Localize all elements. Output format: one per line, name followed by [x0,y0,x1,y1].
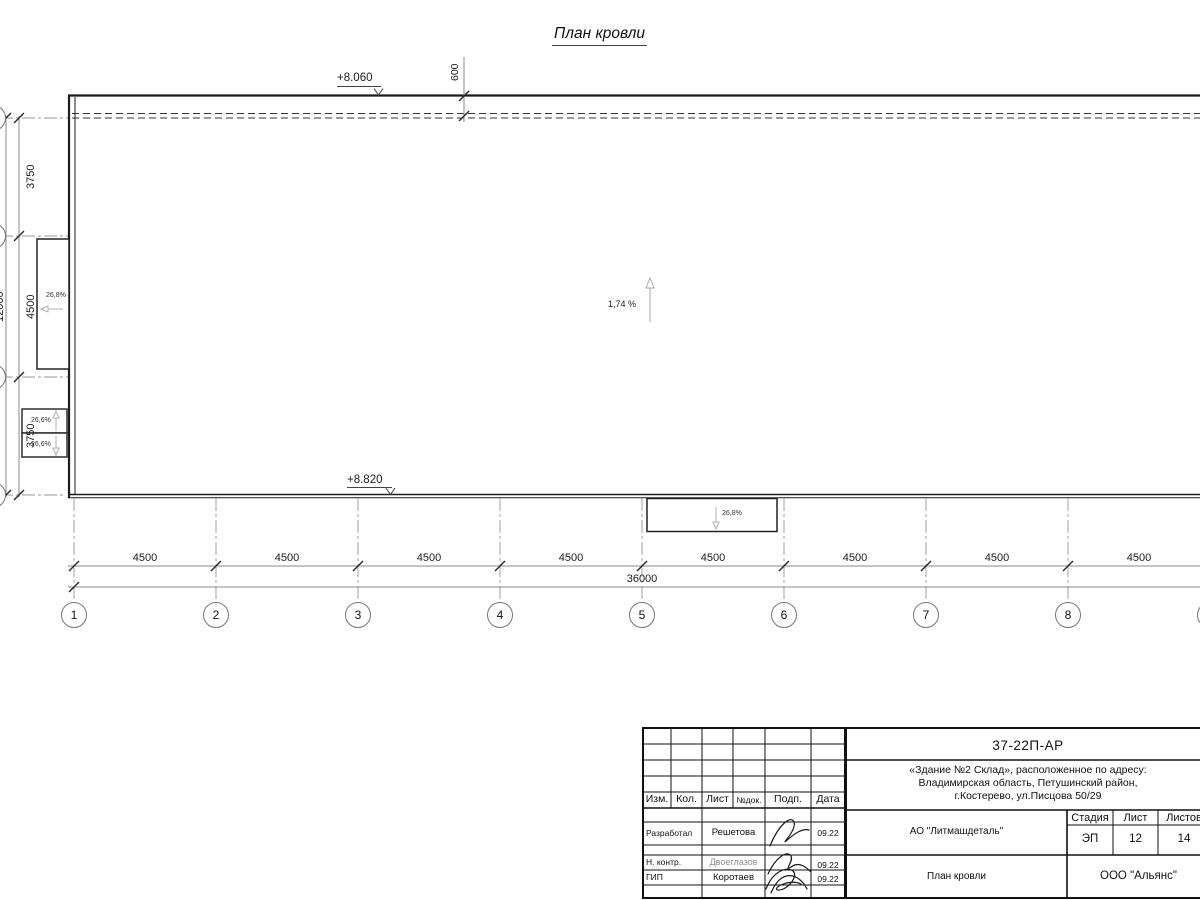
tb-date-developer: 09.22 [811,828,845,838]
grid-bubble-6: 6 [772,608,796,622]
tb-col-data: Дата [811,793,845,805]
tb-client: АО "Литмашдеталь" [846,826,1067,837]
tb-role-ncontrol: Н. контр. [646,857,702,867]
tb-project-address: «Здание №2 Склад», расположенное по адре… [846,764,1200,803]
main-roof-slope: 1,74 % [608,299,636,309]
grid-bubble-3: 3 [346,608,370,622]
grid-bubble-7: 7 [914,608,938,622]
left-dim-2: 4500 [25,236,39,377]
span-dim-8: 4500 [1099,552,1179,564]
left-dim-1: 3750 [25,118,39,236]
tb-name-developer: Решетова [702,827,765,838]
left-canopy [37,239,69,369]
span-dim-4: 4500 [531,552,611,564]
grid-bubble-2: 2 [204,608,228,622]
tb-name-ncontrol: Двоеглазов [702,857,765,867]
bottom-canopy [647,499,777,532]
tb-sheet-label: Лист [1113,812,1158,824]
slope-arrow [646,278,654,322]
tb-sheet-value: 12 [1113,833,1158,845]
signature-dvoeglazov [768,854,811,874]
small-canopy-slope-bottom: 26,6% [31,441,51,448]
span-dim-6: 4500 [815,552,895,564]
grid-bubbles [0,106,1200,628]
tb-col-list: Лист [702,793,733,805]
roof-overhang-dashed-lines [72,114,1200,119]
tb-col-ndok: №док. [733,795,765,805]
grid-bubble-5: 5 [630,608,654,622]
tb-address-line-2: Владимирская область, Петушинский район, [846,777,1200,790]
dimension-lines [6,57,1200,587]
tb-col-podp: Подп. [765,793,811,805]
tb-sheet-title: План кровли [846,871,1067,882]
elevation-bottom-label: +8.820 [347,474,383,486]
tb-role-developer: Разработал [646,828,702,838]
bottom-canopy-slope: 26,8% [722,510,742,517]
tb-col-izm: Изм. [643,793,671,805]
tb-date-gip: 09.22 [811,874,845,884]
grid-bubble-4: 4 [488,608,512,622]
grid-bubble-1: 1 [62,608,86,622]
tb-address-line-3: г.Костерево, ул.Писцова 50/29 [846,790,1200,803]
tb-name-gip: Коротаев [702,872,765,883]
small-canopy-slope-top: 26,6% [31,417,51,424]
left-total-dim: 12000 [0,118,8,495]
tb-col-kol: Кол. [671,793,702,805]
tb-stage-value: ЭП [1067,833,1113,845]
tb-sheets-label: Листов [1158,812,1200,824]
roof-plan-sheet: План кровли +8.060 +8.820 600 3750 4500 … [0,0,1200,900]
parapet-offset-label: 600 [449,52,462,92]
column-grid-lines [74,498,1068,602]
elevation-top-label: +8.060 [337,72,373,84]
building-outline [68,95,1200,499]
signatures [766,820,811,893]
tb-company: ООО "Альянс" [1067,870,1200,882]
tb-role-gip: ГИП [646,872,702,882]
left-dim-3: 3750 [25,377,39,495]
page-title: План кровли [552,25,647,46]
left-canopy-slope: 26,8% [46,292,66,299]
total-dim: 36000 [602,573,682,585]
tb-sheets-value: 14 [1158,833,1200,845]
dimension-ticks [1,91,1073,592]
tb-date-ncontrol: 09.22 [811,860,845,870]
tb-doc-number: 37-22П-АР [846,738,1200,753]
grid-bubble-8: 8 [1056,608,1080,622]
span-dim-7: 4500 [957,552,1037,564]
elevation-leaders [337,87,395,495]
tb-stage-label: Стадия [1067,812,1113,824]
tb-address-line-1: «Здание №2 Склад», расположенное по адре… [846,764,1200,777]
span-dim-3: 4500 [389,552,469,564]
span-dim-1: 4500 [105,552,185,564]
span-dim-5: 4500 [673,552,753,564]
signature-korotaev [766,869,807,893]
span-dim-2: 4500 [247,552,327,564]
signature-reshetova [770,820,809,846]
